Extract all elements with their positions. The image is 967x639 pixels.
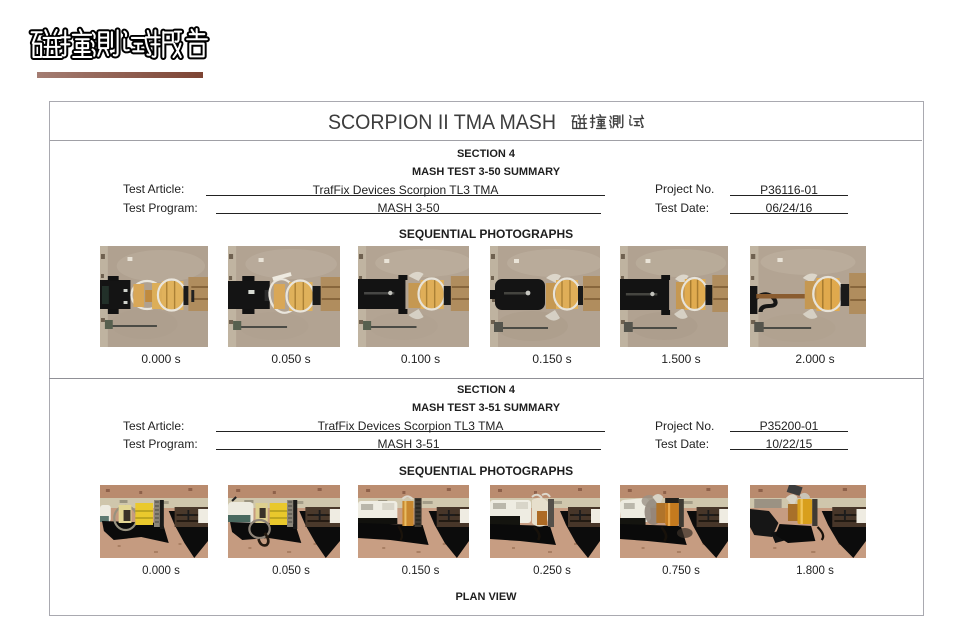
svg-text:SCORPION II TMA MASH: SCORPION II TMA MASH <box>328 111 556 134</box>
